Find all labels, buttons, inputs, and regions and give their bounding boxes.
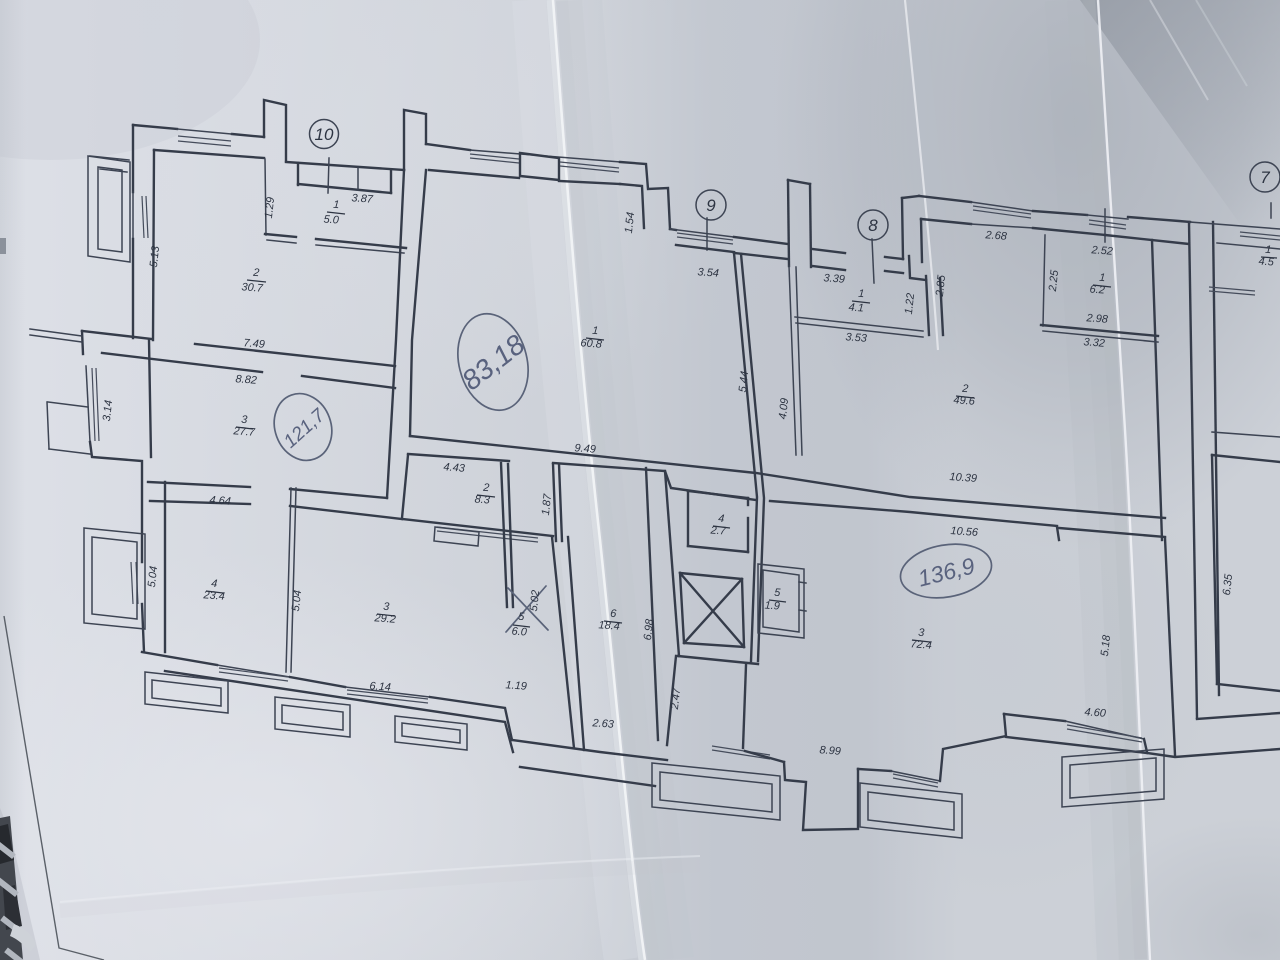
svg-text:2.63: 2.63: [591, 717, 615, 731]
svg-text:2.68: 2.68: [984, 229, 1008, 243]
svg-text:1.29: 1.29: [263, 196, 277, 219]
svg-text:2: 2: [961, 383, 969, 395]
svg-text:2.47: 2.47: [669, 687, 683, 711]
svg-text:8.82: 8.82: [235, 373, 257, 386]
svg-text:3.87: 3.87: [351, 192, 374, 206]
svg-text:1.22: 1.22: [903, 292, 917, 315]
svg-text:3.54: 3.54: [697, 266, 719, 279]
svg-text:4.60: 4.60: [1084, 706, 1107, 720]
svg-text:5.02: 5.02: [528, 589, 542, 612]
svg-text:2: 2: [482, 482, 490, 494]
svg-text:27.7: 27.7: [232, 425, 256, 439]
svg-text:60.8: 60.8: [580, 337, 603, 351]
svg-text:2.85: 2.85: [934, 274, 948, 298]
svg-text:3.39: 3.39: [823, 272, 845, 285]
svg-text:9.49: 9.49: [574, 442, 596, 455]
svg-text:5.13: 5.13: [148, 245, 162, 268]
svg-text:1: 1: [592, 325, 599, 337]
svg-text:8.99: 8.99: [819, 744, 841, 757]
svg-text:23.4: 23.4: [202, 589, 225, 603]
svg-text:8: 8: [868, 216, 878, 235]
svg-text:1.19: 1.19: [505, 679, 527, 692]
svg-text:10.39: 10.39: [949, 471, 977, 485]
svg-text:2.25: 2.25: [1047, 269, 1061, 293]
svg-text:3.32: 3.32: [1083, 336, 1105, 349]
svg-text:1: 1: [858, 288, 865, 300]
svg-text:1: 1: [1265, 244, 1272, 256]
svg-text:7.49: 7.49: [243, 337, 265, 350]
svg-text:30.7: 30.7: [241, 281, 264, 295]
svg-text:7: 7: [1260, 168, 1270, 187]
svg-text:2.98: 2.98: [1085, 312, 1109, 326]
svg-text:49.6: 49.6: [953, 394, 976, 408]
svg-text:2: 2: [252, 267, 260, 279]
svg-text:4: 4: [211, 578, 218, 590]
svg-text:6.2: 6.2: [1089, 283, 1105, 296]
svg-text:1.54: 1.54: [623, 211, 637, 234]
svg-text:1: 1: [1099, 272, 1106, 284]
svg-text:18.4: 18.4: [598, 619, 620, 632]
svg-text:5.04: 5.04: [146, 565, 160, 588]
svg-text:1.9: 1.9: [764, 599, 780, 612]
svg-text:4.09: 4.09: [777, 397, 791, 420]
svg-text:4: 4: [718, 513, 725, 525]
svg-text:5.18: 5.18: [1099, 634, 1113, 657]
svg-text:4.5: 4.5: [1258, 255, 1275, 268]
svg-text:5.44: 5.44: [737, 370, 751, 393]
svg-text:9: 9: [706, 196, 716, 215]
svg-text:5.04: 5.04: [290, 589, 304, 612]
svg-text:1.87: 1.87: [540, 493, 554, 516]
svg-text:3.14: 3.14: [101, 399, 115, 422]
svg-text:8.3: 8.3: [474, 493, 491, 506]
svg-text:6.35: 6.35: [1221, 573, 1235, 596]
svg-text:6.14: 6.14: [369, 680, 391, 693]
svg-text:4.43: 4.43: [443, 461, 466, 475]
svg-text:5.0: 5.0: [323, 213, 340, 226]
svg-text:6.0: 6.0: [511, 625, 528, 638]
svg-text:3.53: 3.53: [845, 331, 868, 345]
svg-text:10: 10: [315, 125, 334, 144]
svg-text:1: 1: [333, 199, 340, 211]
svg-text:6.98: 6.98: [642, 618, 656, 641]
svg-text:29.2: 29.2: [373, 612, 396, 626]
svg-text:2.7: 2.7: [709, 524, 727, 537]
svg-text:4.64: 4.64: [209, 494, 231, 507]
svg-text:72.4: 72.4: [910, 638, 932, 651]
svg-text:2.52: 2.52: [1090, 244, 1113, 258]
svg-text:4.1: 4.1: [848, 301, 864, 314]
svg-text:10.56: 10.56: [950, 525, 979, 539]
